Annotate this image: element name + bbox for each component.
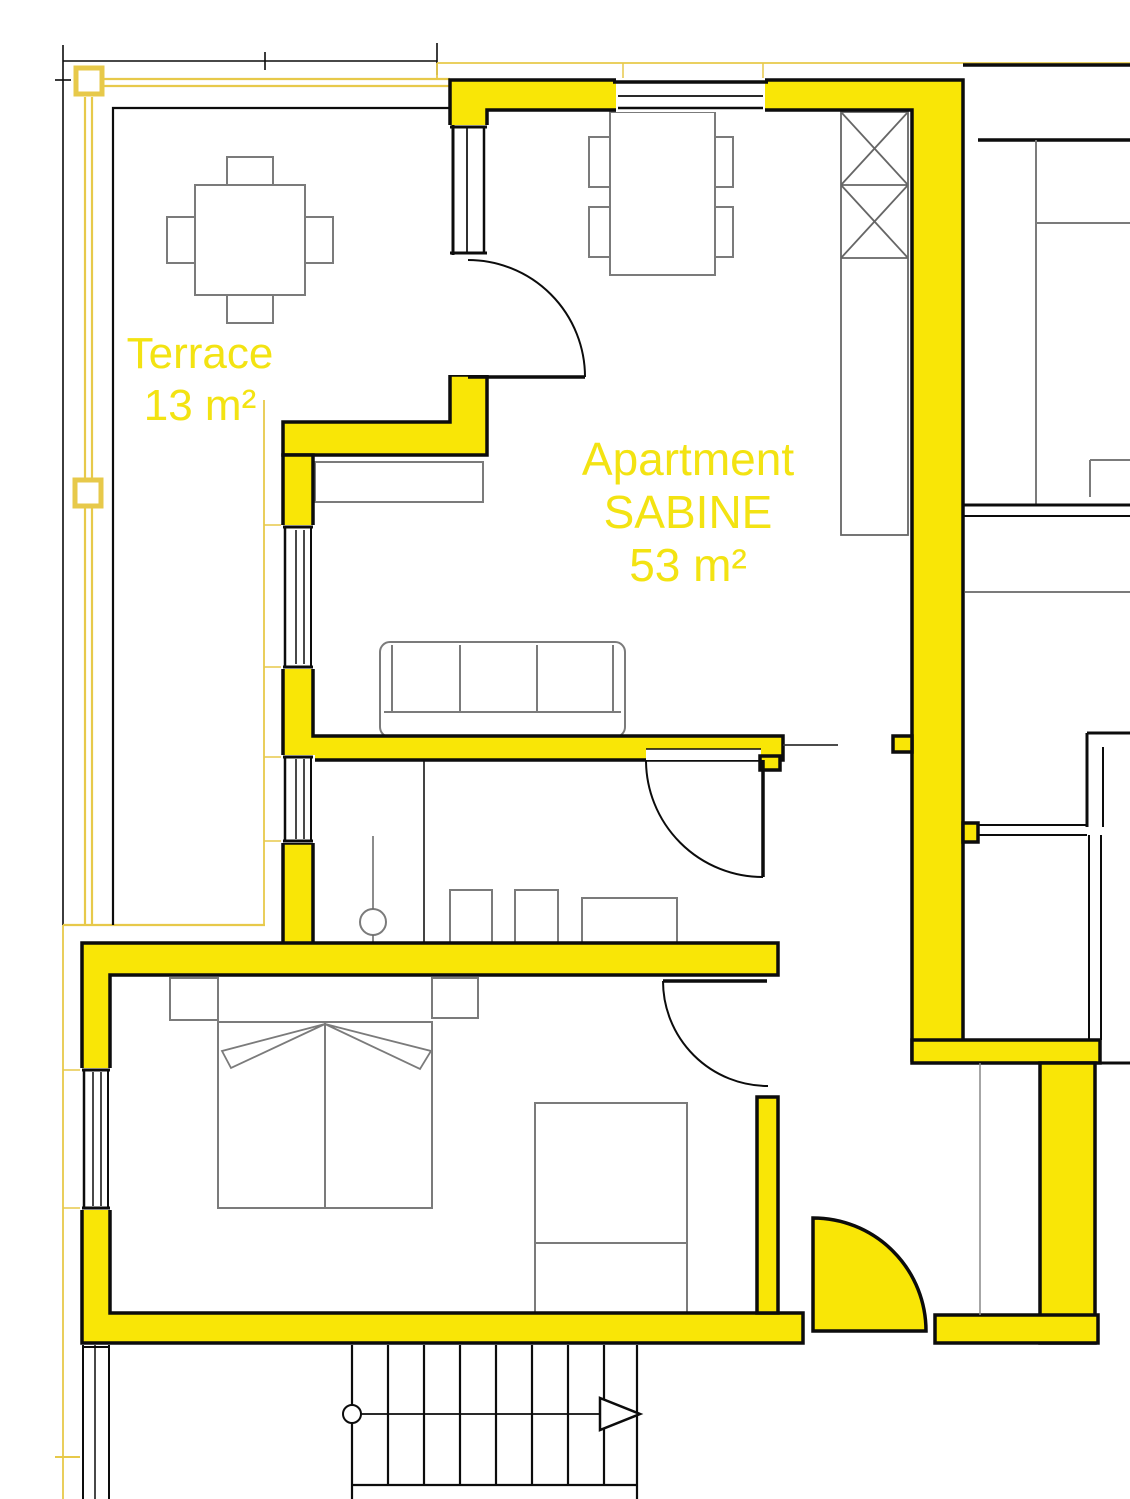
door-swing-arc — [663, 981, 768, 1086]
dining-chair — [589, 207, 610, 257]
wall-top-left-corner — [450, 80, 618, 127]
terrace-area-label: 13 m² — [144, 381, 256, 430]
wall-bedroom-bottom — [82, 1208, 803, 1343]
bed-blanket-fold — [325, 1024, 431, 1069]
balcony-door — [448, 257, 585, 377]
furniture — [170, 112, 908, 1313]
wall-stub — [963, 823, 978, 842]
staircase — [343, 1345, 640, 1499]
sofa-outline — [380, 642, 625, 737]
apartment-name-label: SABINE — [604, 486, 773, 538]
entrance-door — [813, 1218, 926, 1331]
arrow-head — [600, 1398, 640, 1430]
window-west-living — [281, 525, 315, 669]
wall-west-and-interior — [283, 667, 783, 760]
wall-bedroom-hall — [757, 1097, 778, 1313]
window-top — [613, 78, 768, 112]
apartment-area-label: 53 m² — [629, 539, 747, 591]
nightstand — [170, 978, 218, 1020]
washbasin-icon — [360, 909, 386, 935]
bathroom-fixtures — [360, 760, 677, 952]
wardrobe-outline — [535, 1103, 687, 1313]
door-opening — [448, 257, 489, 375]
window-west-upper — [448, 125, 489, 255]
dining-table-group — [589, 112, 733, 275]
wall-stub — [893, 736, 912, 752]
wall-bottom-right — [935, 1315, 1098, 1343]
railing-post-marker — [76, 68, 102, 94]
railing-post-marker — [75, 480, 101, 506]
terrace-chair — [227, 157, 273, 185]
wall-east-lower — [1040, 1063, 1095, 1343]
bedroom-door — [663, 981, 768, 1086]
nightstand — [432, 978, 478, 1018]
bed-blanket-fold — [222, 1024, 325, 1068]
door-lintel-opening — [646, 749, 761, 760]
wall-west-bath — [283, 843, 313, 948]
floor-plan-drawing: Terrace 13 m² Apartment SABINE 53 m² — [0, 0, 1130, 1499]
guide-lines — [55, 63, 1130, 1499]
bathroom-door — [646, 760, 763, 877]
sofa — [380, 642, 625, 737]
window-west-bath — [281, 755, 315, 843]
arrow-start-circle — [343, 1405, 361, 1423]
terrace-label: Terrace — [127, 329, 274, 378]
wall-niche-top — [912, 1040, 1100, 1063]
dining-chair — [715, 207, 733, 257]
dining-chair — [589, 137, 610, 187]
wall-top-right-and-east — [763, 80, 963, 1060]
terrace — [63, 68, 450, 925]
window-bedroom — [80, 1068, 112, 1210]
sideboard — [315, 462, 483, 502]
terrace-chair — [167, 217, 195, 263]
cabinet-outline — [841, 112, 908, 535]
double-bed-group — [170, 978, 478, 1208]
wardrobe — [535, 1103, 687, 1313]
terrace-table-group — [167, 157, 333, 323]
apartment-label: Apartment — [582, 433, 794, 485]
tall-cabinet — [841, 112, 908, 535]
wall-west-jog — [283, 375, 487, 455]
dining-chair — [715, 137, 733, 187]
terrace-chair — [227, 295, 273, 323]
terrace-table — [195, 185, 305, 295]
door-swing-arc — [646, 760, 763, 877]
wall-west — [283, 455, 313, 527]
dining-table — [610, 112, 715, 275]
facade-below — [82, 1345, 110, 1499]
floor-plan: Terrace 13 m² Apartment SABINE 53 m² — [0, 0, 1130, 1499]
terrace-chair — [305, 217, 333, 263]
